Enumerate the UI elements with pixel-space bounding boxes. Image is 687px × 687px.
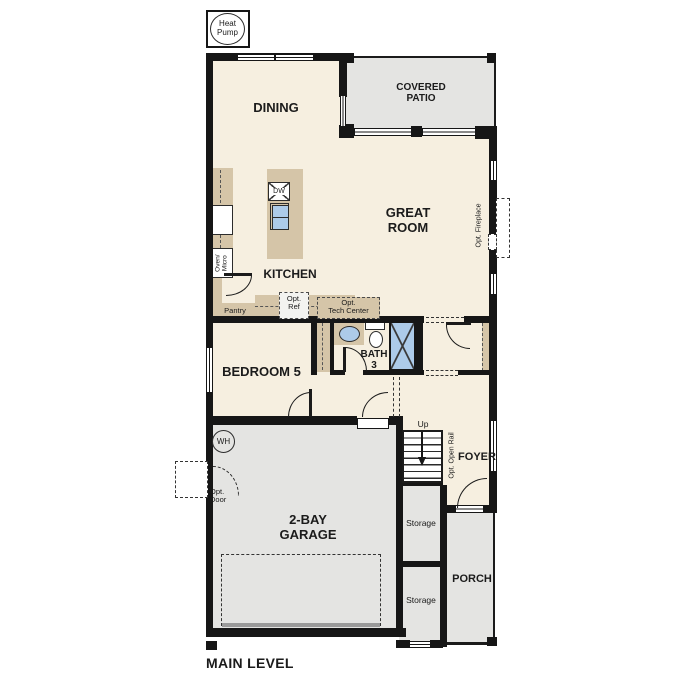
window [206, 347, 213, 393]
bath-vanity [334, 321, 364, 345]
dishwasher: DW [268, 182, 290, 201]
closet-rod-dash [322, 323, 324, 370]
bedroom-door-leaf [309, 389, 312, 417]
bedroom5-label: BEDROOM 5 [214, 365, 309, 380]
opt-tech-center-box: Opt. Tech Center [317, 297, 380, 319]
stairs-up-label: Up [413, 420, 433, 430]
opt-tech-center-label-line2: Tech Center [318, 307, 379, 315]
toilet-bowl-icon [369, 331, 383, 348]
wall [416, 316, 423, 375]
plan-title: MAIN LEVEL [206, 656, 326, 672]
kitchen-label: KITCHEN [259, 268, 321, 281]
oven-micro-label-line2: Micro [222, 254, 229, 271]
heat-pump-label-line2: Pump [217, 29, 238, 38]
patio-post [411, 126, 422, 137]
garage-label: 2-BAY GARAGE [268, 513, 348, 542]
island-sink [270, 203, 289, 230]
wall [443, 505, 455, 513]
floor-plan: Oven/ Micro DW Opt. Ref Opt. Tech Center [0, 0, 687, 687]
great-room-label: GREAT ROOM [378, 206, 438, 235]
porch-label: PORCH [450, 573, 494, 585]
opt-fireplace-inner [488, 234, 497, 250]
water-heater: WH [212, 430, 235, 453]
window-mullion [274, 53, 276, 61]
foyer-label: FOYER [455, 451, 499, 463]
cased-opening-dash [426, 370, 458, 376]
heat-pump-circle: Heat Pump [210, 13, 245, 45]
window [490, 273, 497, 295]
opt-fireplace-label: Opt. Fireplace [476, 196, 483, 256]
entry-closet [482, 322, 489, 372]
water-heater-label: WH [217, 437, 230, 446]
window [409, 641, 431, 648]
storage-upper-label: Storage [402, 519, 440, 529]
plan-marker [206, 641, 217, 650]
wall [396, 640, 410, 648]
pantry-door-leaf [224, 273, 252, 276]
wall [206, 53, 213, 637]
patio-post [343, 53, 354, 63]
bath3-label: BATH 3 [354, 349, 394, 371]
dining-label: DINING [226, 101, 326, 116]
bath-sink-icon [339, 326, 360, 342]
stairs-arrow-icon [418, 457, 426, 466]
wall [430, 640, 443, 648]
wall [311, 316, 317, 375]
opt-ref-label-line2: Ref [280, 303, 308, 311]
opt-rail-dash [393, 377, 400, 417]
window [354, 128, 412, 136]
opt-open-rail-label: Opt. Open Rail [449, 426, 456, 486]
wall [396, 561, 442, 567]
bedroom-closet [317, 321, 330, 372]
garage-door-outline [221, 554, 381, 626]
patio-post [475, 126, 497, 139]
garage-door-threshold [357, 418, 389, 429]
wall [206, 628, 406, 637]
window [490, 160, 497, 181]
covered-patio-label: COVERED PATIO [385, 82, 457, 104]
opt-ref-box: Opt. Ref [279, 292, 309, 319]
patio-post [487, 53, 496, 63]
dishwasher-label: DW [272, 188, 286, 195]
porch-corner-post [487, 637, 497, 646]
wall [206, 416, 357, 425]
closet-rod-dash [482, 323, 484, 371]
sliding-door [340, 95, 346, 127]
wall [458, 370, 497, 375]
closet-door-leaf [446, 322, 471, 325]
heat-pump-box: Heat Pump [206, 10, 250, 48]
wall [330, 316, 334, 372]
storage-lower-label: Storage [402, 596, 440, 606]
stairs-direction-line [421, 432, 423, 458]
opt-door-label: Opt. Door [210, 488, 240, 505]
cooktop [211, 205, 233, 235]
sink-basin [272, 217, 289, 230]
opt-fireplace-outline [496, 198, 510, 258]
garage-door-panel [222, 623, 380, 627]
window [422, 128, 476, 136]
opt-door-outline [175, 461, 208, 498]
window [490, 420, 497, 472]
pantry-label: Pantry [213, 307, 257, 315]
bath-door-leaf [343, 347, 346, 372]
